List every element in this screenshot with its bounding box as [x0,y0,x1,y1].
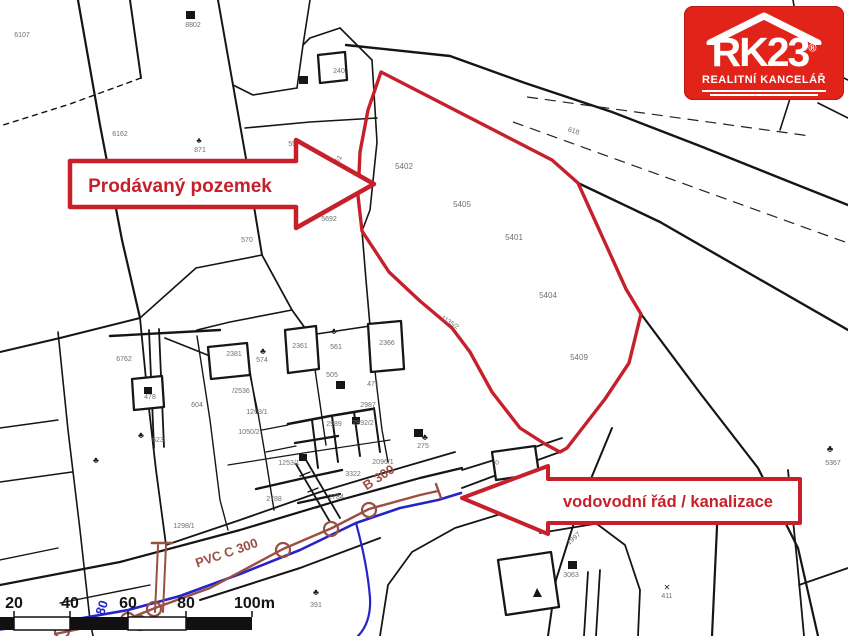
map-label: 411 [661,593,672,600]
map-label: 2992/2 [352,420,374,427]
scale-bar: 20406080100m [0,595,275,630]
map-label: 561 [330,344,342,351]
map-label: ♣ [93,455,99,465]
map-label: 5401 [505,233,523,242]
map-label: 1050/2 [238,429,260,436]
map-label: 6107 [14,32,30,39]
map-label: 604 [191,402,203,409]
map-label: 5402 [395,162,413,171]
map-label: 2361 [292,343,308,350]
scale-label: 20 [5,595,23,612]
map-label: ♣ [138,430,144,440]
callout-sale-arrow: Prodávaný pozemek [70,140,374,228]
logo-rule [710,94,818,96]
map-label: 8802 [185,22,201,29]
scale-labels: 20406080100m [5,595,275,612]
callout-utility-label: vodovodní řád / kanalizace [563,493,773,511]
map-label: 5404 [539,291,557,300]
map-label: 478 [144,394,156,401]
map-label: 623 [152,437,164,444]
map-label: ♣ [422,432,428,442]
logo-rule [702,90,826,92]
map-label: 5405 [453,200,471,209]
map-label: 1263/1 [246,409,268,416]
map-label: 1997 [566,531,583,546]
map-label: 2989 [326,421,342,428]
map-label: 275 [417,443,429,450]
map-label: 2784 [328,494,344,501]
map-label: 6762 [116,356,132,363]
map-label: 505 [326,372,338,379]
scale-label: 80 [177,595,195,612]
map-label: 5367 [825,460,841,467]
map-label: ♣ [196,136,202,145]
registered-mark: ® [808,42,816,54]
map-label: 3322 [345,471,361,478]
logo-brand: RK23® [684,32,844,73]
map-label: ◇ [495,460,500,466]
map-label: ♣ [260,346,266,356]
map-label: /2536 [232,388,250,395]
callout-sale-label: Prodávaný pozemek [88,176,272,197]
map-label: ♣ [827,444,834,455]
map-label: B 300 [360,461,397,492]
map-label: 871 [194,147,206,154]
map-label: 2987 [360,402,376,409]
water-main-line [0,493,461,636]
highlighted-parcel-outline [358,72,641,452]
map-label: 240 [333,68,345,75]
map-label: 1298/1 [173,523,195,530]
map-label: 5409 [570,353,588,362]
scale-label: 40 [61,595,79,612]
map-label: ✕ [664,583,671,592]
map-label: 2366 [379,340,395,347]
listing-map-image: 6107880261628715504561569261824057054025… [0,0,848,636]
scale-label: 100m [234,595,275,612]
map-label: 1135/2 [440,315,460,332]
logo-tagline: REALITNÍ KANCELÁŘ [684,74,844,86]
map-label: 574 [256,357,268,364]
map-label: 618 [567,126,580,136]
map-label: 2788 [266,496,282,503]
rk23-logo: RK23® REALITNÍ KANCELÁŘ [684,6,844,100]
map-label: 6162 [112,131,128,138]
map-label: ♣ [313,587,319,597]
map-label: 5692 [321,216,337,223]
map-label: 2381 [226,351,242,358]
map-label: 3063 [563,572,579,579]
map-label: 570 [241,237,253,244]
map-label: 471 [367,381,379,388]
map-label: 391 [310,602,322,609]
scale-label: 60 [119,595,137,612]
map-label: 1253/1 [278,460,300,467]
map-label: ♣ [331,326,337,336]
